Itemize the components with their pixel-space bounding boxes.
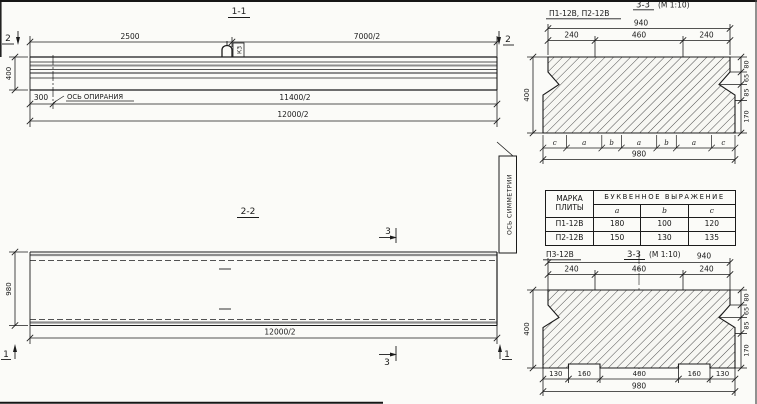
table-cell-p1-c: 120 [688,218,735,232]
table-row: П1-12В 180 100 120 [546,218,736,232]
svg-text:3: 3 [385,227,391,237]
table-col-c: c [688,205,735,218]
p12-letter-a1: a [582,139,586,147]
p12-letter-c1: c [553,139,557,147]
p12-dim-label-240-r: 240 [699,31,714,40]
section-2-2: 2-2 3 980 [1,142,517,368]
dim-label-2500: 2500 [120,32,139,41]
table-cell-p1-b: 100 [641,218,688,232]
table-header-expression: БУКВЕННОЕ ВЫРАЖЕНИЕ [594,191,736,205]
p12-dim-label-85: 85 [743,88,751,96]
p12-dim-label-980: 980 [632,150,647,159]
p3-dim-label-240-l: 240 [564,265,579,274]
p12-dim-label-65: 65 [743,74,751,82]
cut-marker-1-right: 1 [498,344,512,360]
table-cell-p2-c: 135 [688,232,735,246]
p12-dim-940 [545,24,733,55]
dim-label-400: 400 [5,67,13,80]
p12-letter-a3: a [692,139,696,147]
svg-text:3: 3 [384,358,390,368]
p12-dim-label-940: 940 [634,19,649,28]
table-cell-p2-b: 130 [641,232,688,246]
svg-text:1: 1 [3,350,9,360]
cut-marker-2-left: 2 [2,31,20,45]
beam-elevation [30,57,497,90]
table-cell-p2-a: 150 [594,232,641,246]
p12-letter-c2: c [721,139,725,147]
section-3-3-p3: П3-12В 3-3 (М 1:10) 940 240 460 240 [523,250,751,396]
table-col-b: b [641,205,688,218]
cut-marker-3-bottom: 3 [379,346,397,368]
cut-marker-2-right: 2 [497,31,514,45]
section-2-2-title: 2-2 [241,207,256,217]
p12-letter-b2: b [664,139,669,147]
p12-dim-label-400: 400 [523,88,531,101]
dim-label-7000-2: 7000/2 [354,32,381,41]
p3-dim-label-980: 980 [632,382,647,391]
symmetry-axis-callout: ОСЬ СИММЕТРИИ [497,142,517,253]
p3-dim-label-240-r: 240 [699,265,714,274]
p3-dim-label-170: 170 [743,344,751,356]
p3-dim-label-400: 400 [523,322,531,335]
p3-dim-label-940: 940 [697,252,712,261]
dim-label-11400-2: 11400/2 [279,93,310,102]
blueprint-page: 1-1 2500 7000/2 К3 [0,0,757,404]
section-1-1: 1-1 2500 7000/2 К3 [2,7,514,127]
p12-label: П1-12В, П2-12В [549,9,609,18]
p3-dim-label-85: 85 [743,321,751,329]
p3-dim-label-80: 80 [743,293,751,301]
p12-dim-label-80: 80 [743,60,751,68]
dim-line-total [27,118,500,124]
p3-dim-label-160-r: 160 [688,370,701,378]
slab-plan [30,252,497,326]
plate-dimension-table: МАРКА ПЛИТЫ БУКВЕННОЕ ВЫРАЖЕНИЕ a b c П1… [545,190,736,246]
table-cell-p1-a: 180 [594,218,641,232]
section-1-1-title: 1-1 [232,7,247,17]
svg-text:2: 2 [505,35,511,45]
p3-dim-label-160-l: 160 [578,370,591,378]
p12-letter-b1: b [609,139,614,147]
p3-dim-label-130-r: 130 [716,370,729,378]
table-cell-mark-p2: П2-12В [546,232,594,246]
p3-scale: (М 1:10) [649,250,681,259]
table-header-mark: МАРКА ПЛИТЫ [546,191,594,218]
table-col-a: a [594,205,641,218]
p12-dim-label-240-l: 240 [564,31,579,40]
cut-marker-1-left: 1 [1,344,17,360]
table-row: П2-12В 150 130 135 [546,232,736,246]
p12-letter-a2: a [637,139,641,147]
dim-label-plan-12000-2: 12000/2 [264,328,295,337]
loop-callout: К3 [237,46,244,54]
p3-dim-label-65: 65 [743,307,751,315]
section-3-3-p12: П1-12В, П2-12В 3-3 (М 1:10) 940 240 460 … [523,1,751,165]
dim-label-300: 300 [34,93,49,102]
symmetry-axis-label: ОСЬ СИММЕТРИИ [507,174,514,235]
bearing-axis-label: ОСЬ ОПИРАНИЯ [67,93,123,101]
dim-label-12000-2: 12000/2 [277,110,308,119]
svg-text:1: 1 [504,350,510,360]
p12-dim-label-460: 460 [632,31,647,40]
dim-line-top [27,36,500,57]
p12-title: 3-3 [636,1,650,11]
dim-label-980: 980 [5,282,13,295]
p3-dim-label-400b: 400 [633,370,646,378]
p12-dim-label-170: 170 [743,110,751,122]
p12-cross-section [543,57,735,133]
p12-scale: (М 1:10) [658,1,690,10]
p3-label: П3-12В [546,250,574,259]
svg-text:2: 2 [5,34,11,44]
p3-dim-label-130-l: 130 [549,370,562,378]
table-cell-mark-p1: П1-12В [546,218,594,232]
cut-marker-3-top: 3 [379,227,397,243]
p3-cross-section [543,290,735,368]
